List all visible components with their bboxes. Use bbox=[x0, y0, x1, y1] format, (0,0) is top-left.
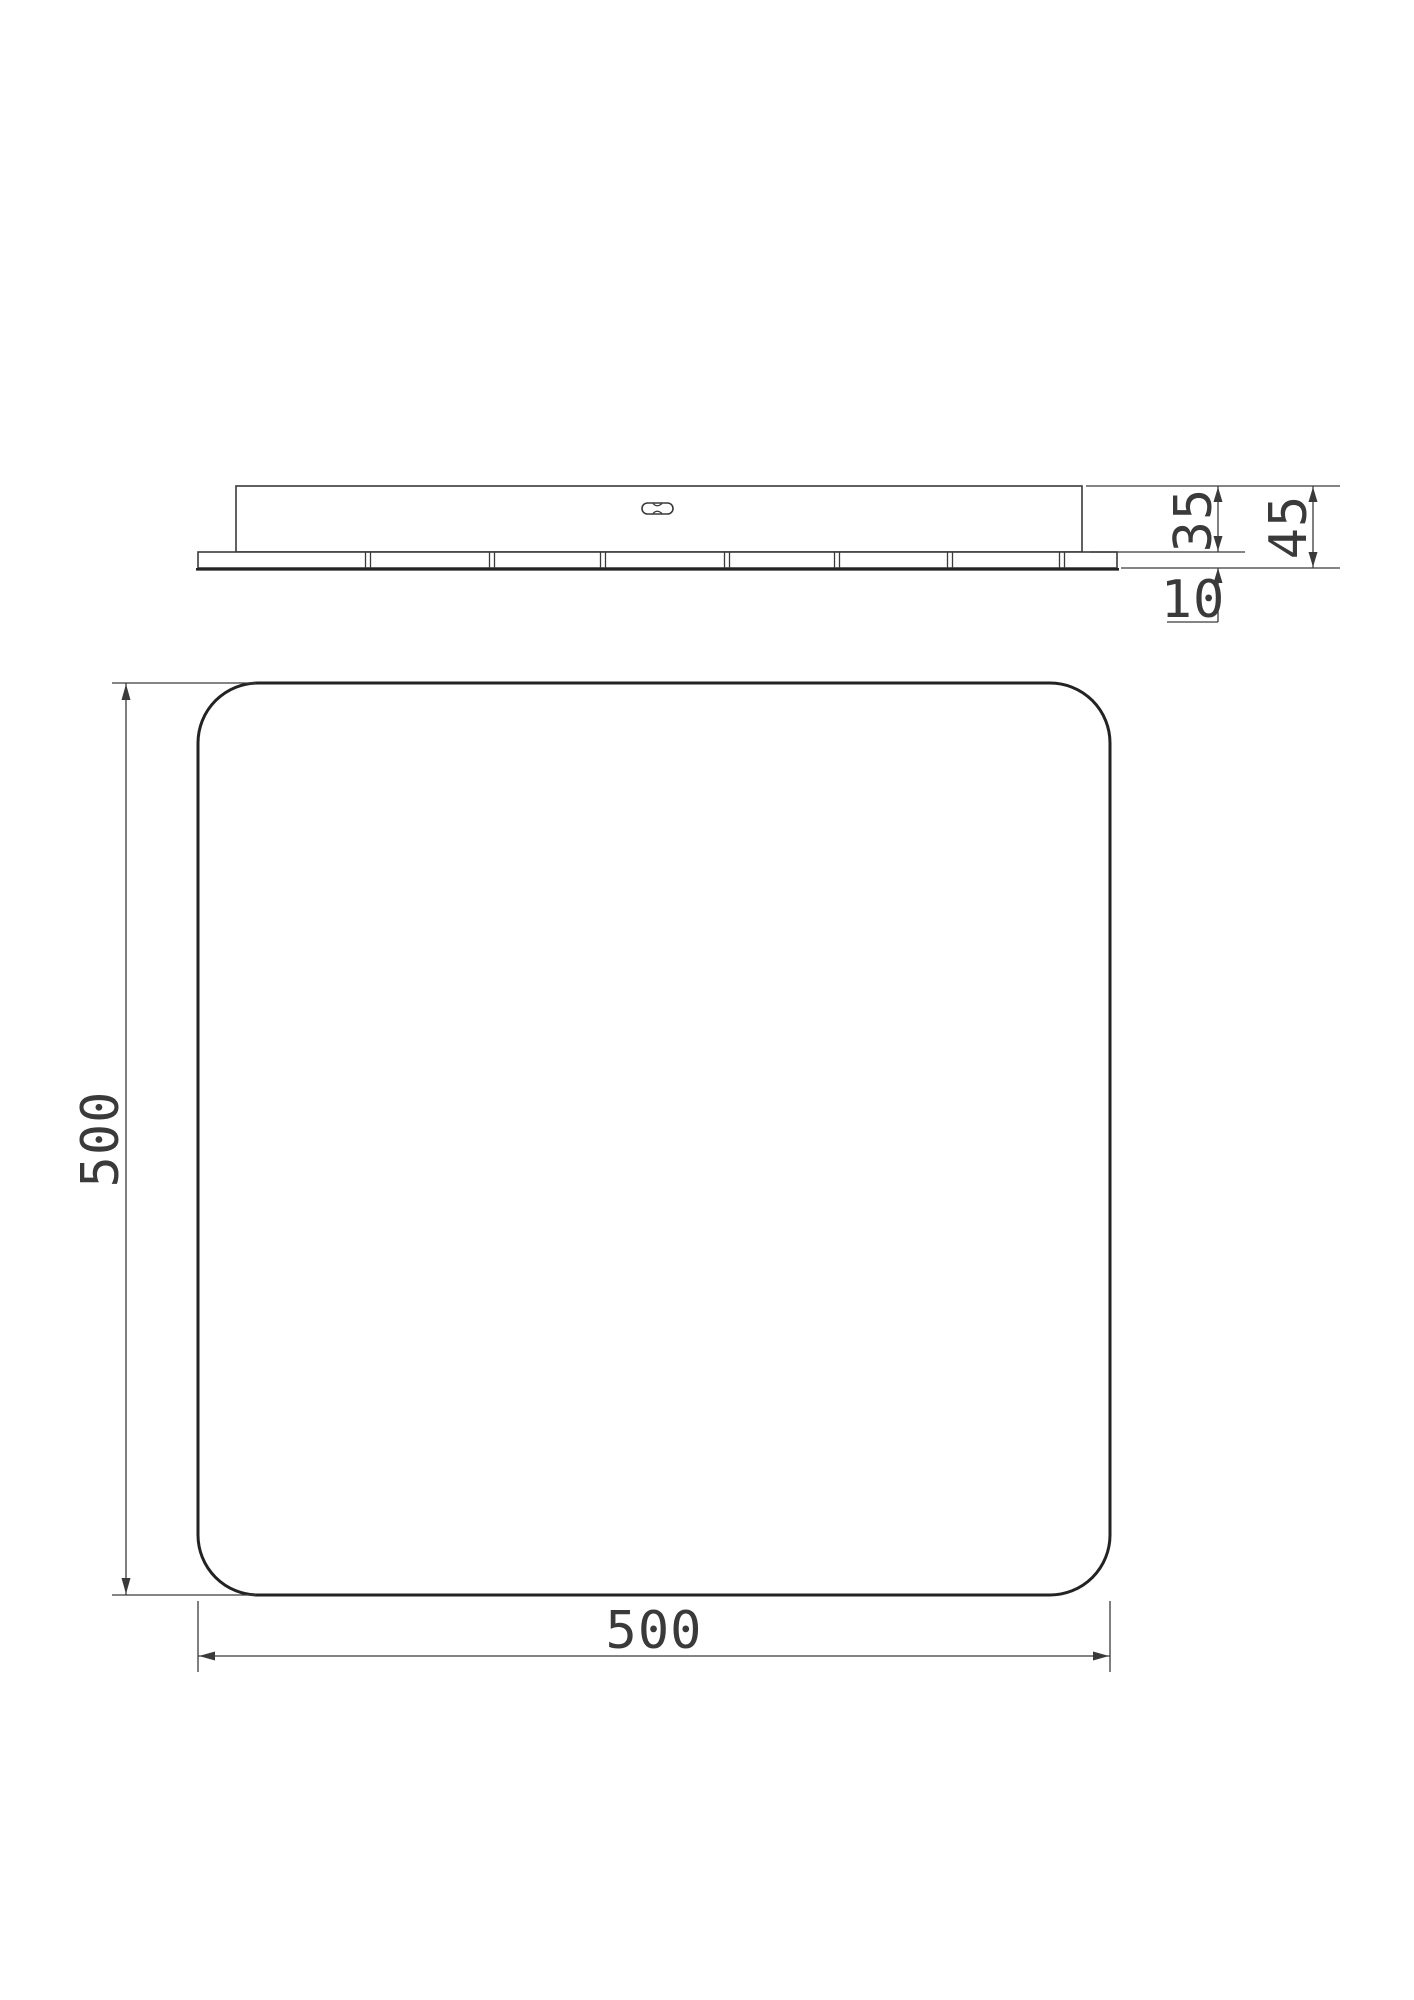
dim-body-height: 35 bbox=[1164, 486, 1224, 552]
side-body-plate bbox=[236, 486, 1082, 552]
panel-outline bbox=[198, 683, 1110, 1595]
dim-label-10: 10 bbox=[1161, 570, 1226, 630]
arrowhead-right bbox=[1093, 1652, 1109, 1661]
pad-strip bbox=[198, 552, 1117, 568]
dim-total-height: 45 bbox=[1259, 486, 1319, 568]
dim-label-35: 35 bbox=[1164, 488, 1224, 553]
dim-label-45: 45 bbox=[1259, 495, 1319, 560]
side-view: 35 45 10 bbox=[196, 486, 1340, 630]
dim-label-500-bottom: 500 bbox=[606, 1601, 703, 1661]
arrowhead-up bbox=[122, 684, 131, 700]
drawing-canvas: 35 45 10 500 bbox=[0, 0, 1414, 2000]
arrowhead-left bbox=[199, 1652, 215, 1661]
dim-panel-width: 500 bbox=[198, 1601, 1110, 1672]
top-view: 500 500 bbox=[0, 633, 1414, 1672]
arrowhead-down bbox=[122, 1578, 131, 1594]
dim-pad-height: 10 bbox=[1161, 568, 1226, 630]
dim-label-500-left: 500 bbox=[71, 1091, 131, 1188]
